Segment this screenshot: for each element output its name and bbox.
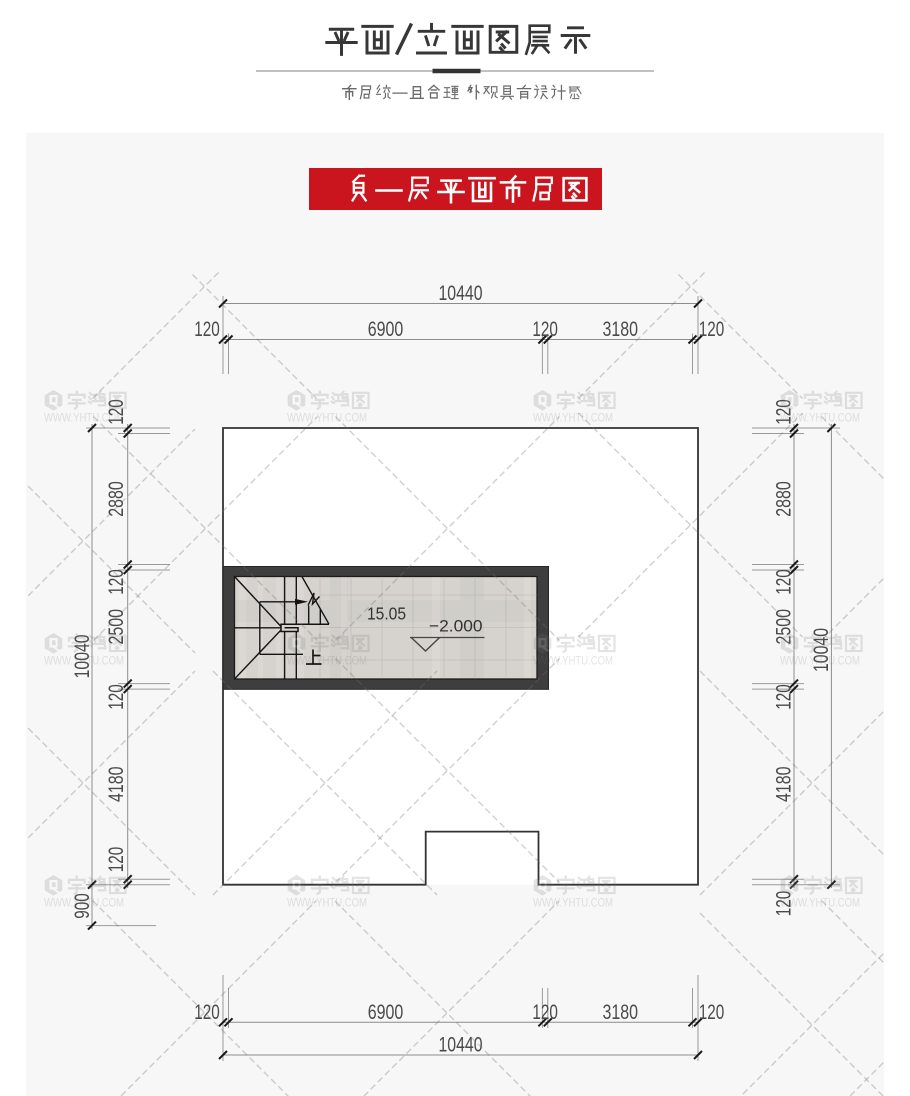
svg-text:WWW.YHTU.COM: WWW.YHTU.COM [533,654,613,668]
svg-text:120: 120 [773,569,796,595]
svg-text:6900: 6900 [368,1001,404,1024]
svg-text:120: 120 [105,684,128,710]
svg-text:WWW.YHTU.COM: WWW.YHTU.COM [44,896,124,910]
svg-text:120: 120 [105,847,128,873]
svg-text:WWW.YHTU.COM: WWW.YHTU.COM [533,411,613,425]
svg-text:120: 120 [194,1001,220,1024]
svg-text:120: 120 [532,318,558,341]
svg-text:WWW.YHTU.COM: WWW.YHTU.COM [533,896,613,910]
svg-text:4180: 4180 [105,766,128,802]
svg-text:WWW.YHTU.COM: WWW.YHTU.COM [780,896,860,910]
svg-text:WWW.YHTU.COM: WWW.YHTU.COM [780,411,860,425]
svg-text:2880: 2880 [773,481,796,517]
svg-text:10440: 10440 [439,1034,483,1057]
svg-text:6900: 6900 [368,318,404,341]
svg-text:−2.000: −2.000 [429,617,483,636]
svg-text:WWW.YHTU.COM: WWW.YHTU.COM [780,654,860,668]
svg-text:4180: 4180 [773,766,796,802]
svg-text:3180: 3180 [602,1001,638,1024]
svg-text:WWW.YHTU.COM: WWW.YHTU.COM [287,411,367,425]
svg-text:120: 120 [532,1001,558,1024]
svg-text:15.05: 15.05 [367,604,406,624]
svg-text:WWW.YHTU.COM: WWW.YHTU.COM [287,654,367,668]
svg-text:120: 120 [699,318,725,341]
svg-text:120: 120 [194,318,220,341]
svg-text:10440: 10440 [439,282,483,305]
svg-text:WWW.YHTU.COM: WWW.YHTU.COM [44,411,124,425]
svg-text:WWW.YHTU.COM: WWW.YHTU.COM [287,896,367,910]
svg-text:WWW.YHTU.COM: WWW.YHTU.COM [44,654,124,668]
svg-text:3180: 3180 [602,318,638,341]
svg-text:120: 120 [699,1001,725,1024]
svg-text:120: 120 [773,684,796,710]
